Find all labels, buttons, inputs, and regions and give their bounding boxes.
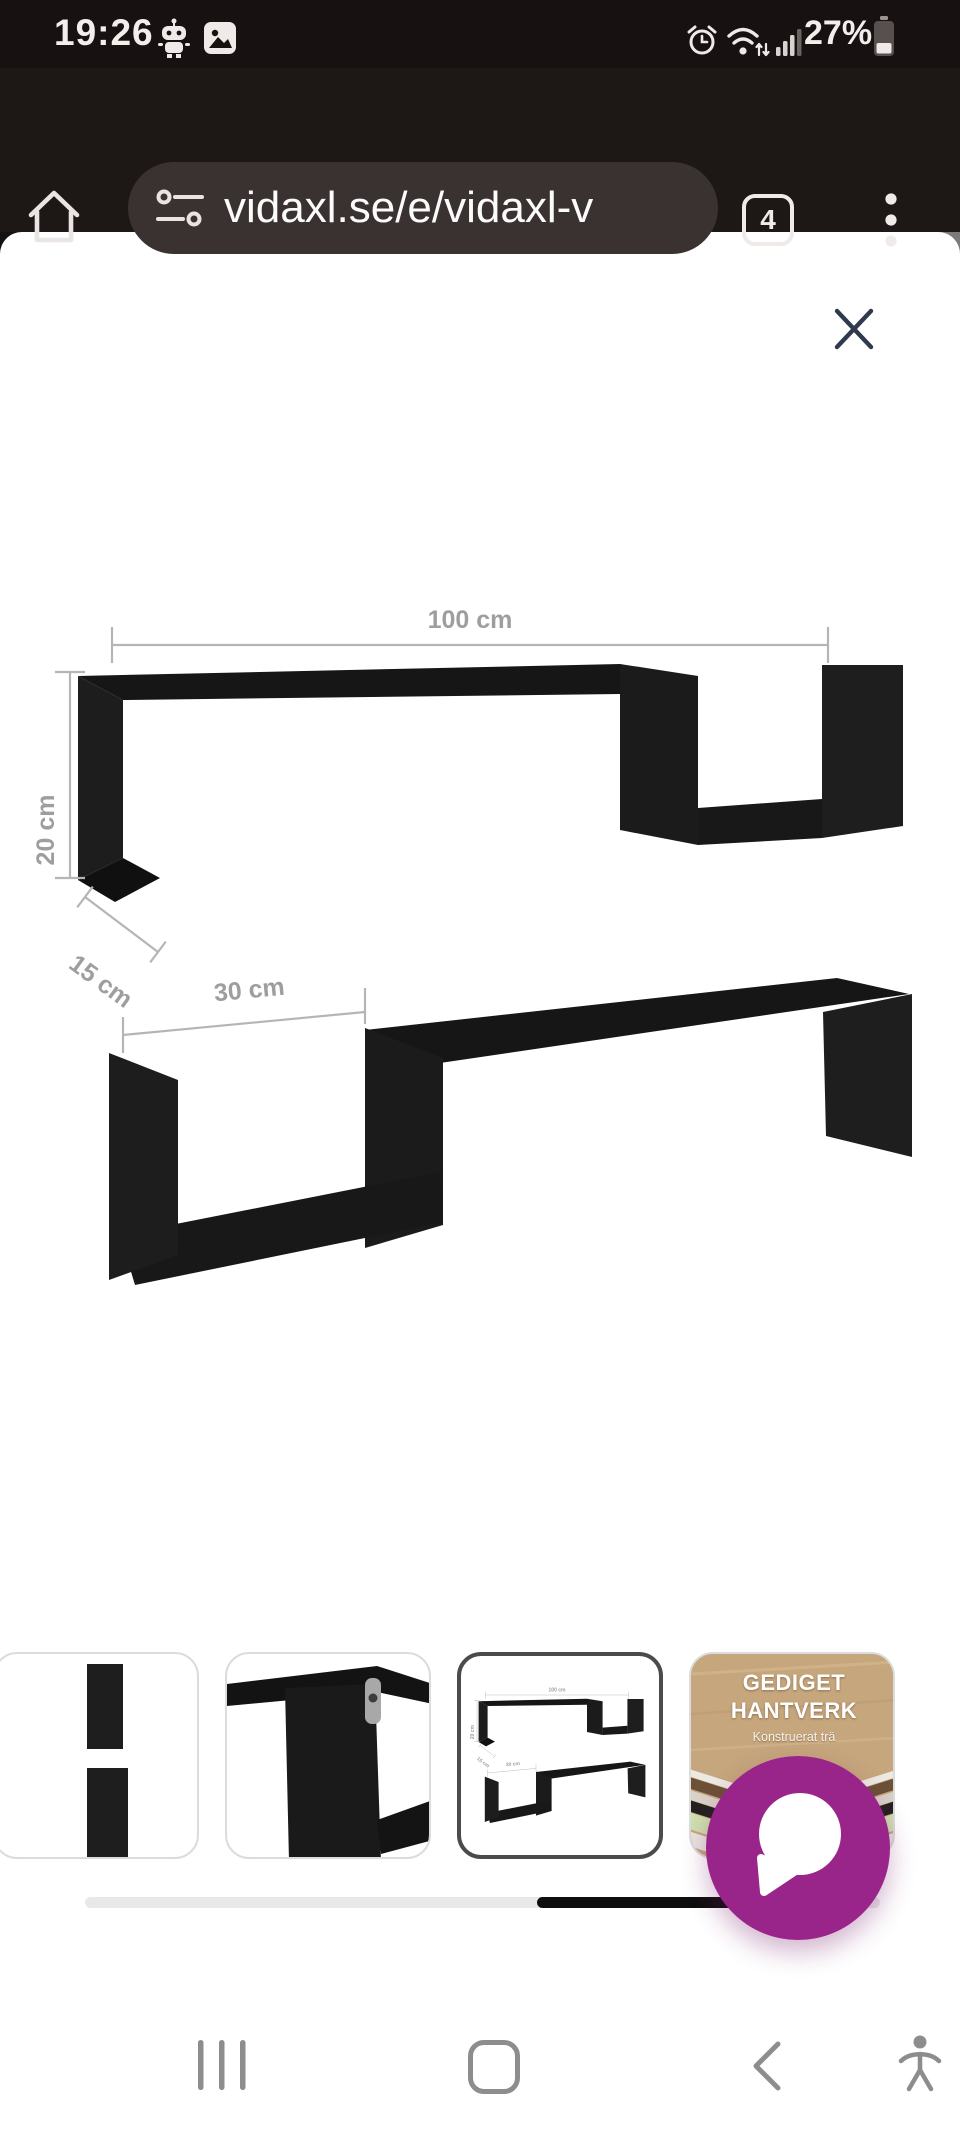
thumbnail-dimension-diagram[interactable] — [457, 1652, 663, 1859]
dimension-width-label: 100 cm — [428, 606, 513, 634]
alarm-icon — [686, 24, 718, 56]
status-bar: 19:26 27% — [0, 0, 960, 68]
back-icon[interactable] — [748, 2040, 784, 2092]
url-text[interactable]: vidaxl.se/e/vidaxl-v — [224, 162, 593, 254]
shelf-corner-graphic — [227, 1654, 431, 1859]
dimension-gap-label: 30 cm — [213, 973, 286, 1008]
wifi-icon — [726, 24, 770, 58]
product-dimension-diagram[interactable]: 100 cm 20 cm 15 cm 30 cm — [30, 590, 930, 1300]
home-button[interactable] — [468, 2040, 520, 2094]
gallery-notification-icon — [204, 22, 236, 54]
thumbnail-shelf-photo-fragment[interactable] — [0, 1652, 199, 1859]
signal-icon — [776, 26, 802, 56]
accessibility-icon[interactable] — [898, 2034, 942, 2092]
dimension-height-label: 20 cm — [32, 795, 60, 866]
tune-icon — [154, 184, 208, 232]
clock-time: 19:26 — [54, 12, 154, 54]
battery-percent: 27% — [804, 14, 872, 53]
speech-bubble-icon — [742, 1784, 854, 1900]
url-bar[interactable]: vidaxl.se/e/vidaxl-v — [128, 162, 718, 254]
overflow-menu-icon[interactable] — [884, 192, 898, 248]
robot-notification-icon — [156, 18, 192, 58]
home-icon[interactable] — [26, 186, 82, 244]
recents-icon[interactable] — [198, 2040, 246, 2090]
battery-icon — [874, 16, 894, 56]
material-title-line1: GEDIGET — [691, 1670, 895, 1696]
dimension-depth-label: 15 cm — [64, 949, 138, 1013]
close-icon[interactable] — [833, 306, 875, 352]
shelf-top — [78, 664, 903, 902]
tabs-button[interactable]: 4 — [742, 194, 794, 246]
carousel-scrollbar-thumb[interactable] — [537, 1897, 742, 1908]
material-subtitle: Konstruerat trä — [691, 1730, 895, 1744]
chat-fab-button[interactable] — [706, 1756, 890, 1940]
browser-address-bar: vidaxl.se/e/vidaxl-v 4 — [0, 68, 960, 232]
mini-diagram — [461, 1656, 661, 1857]
thumbnail-shelf-corner-closeup[interactable] — [225, 1652, 431, 1859]
material-title-line2: HANTVERK — [691, 1698, 895, 1724]
